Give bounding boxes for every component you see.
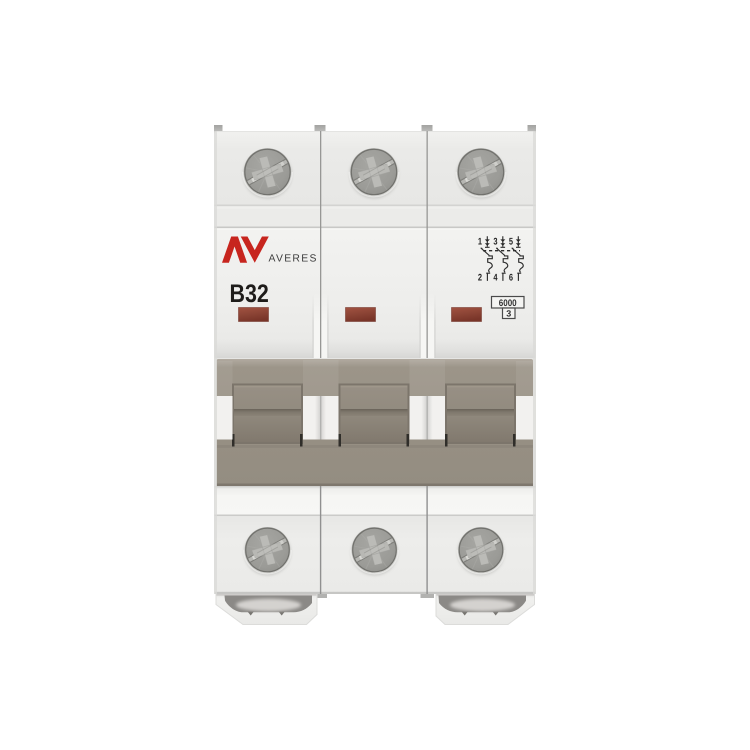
svg-text:1: 1 [478,237,483,248]
svg-text:4: 4 [493,273,498,284]
svg-text:3: 3 [493,237,497,248]
svg-text:3: 3 [506,309,511,319]
svg-text:6000: 6000 [499,298,517,309]
svg-text:AVERES: AVERES [269,253,318,264]
svg-text:5: 5 [509,237,514,248]
svg-text:2: 2 [478,273,482,284]
svg-text:B32: B32 [230,280,269,308]
svg-text:6: 6 [509,273,513,284]
